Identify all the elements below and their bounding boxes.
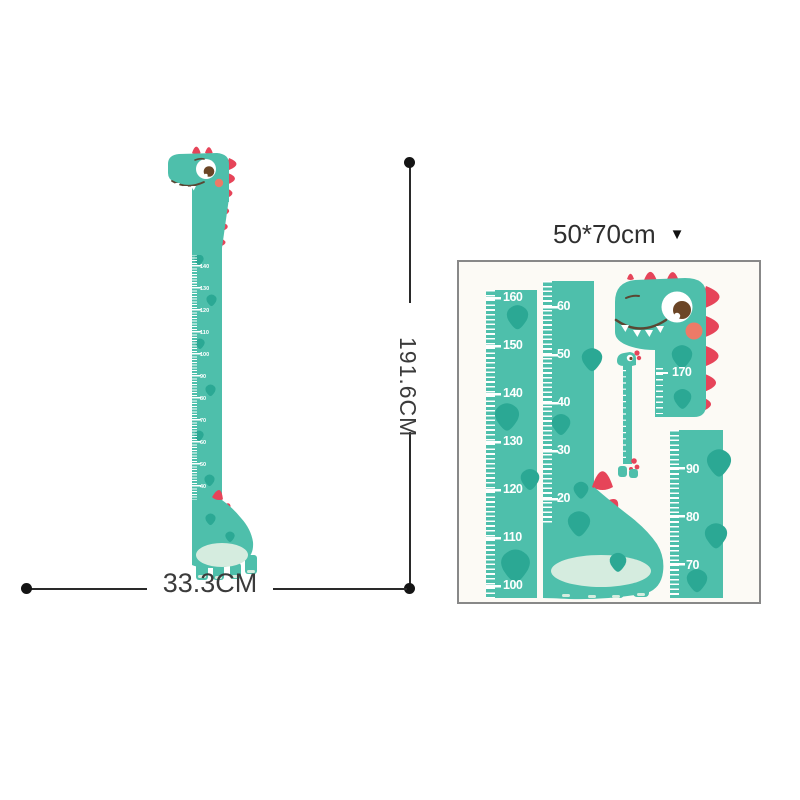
ruler-number: 70 (200, 418, 206, 424)
width-dimension-line-right (273, 588, 407, 590)
dino-body-art (185, 455, 270, 585)
dino-body-piece-art (543, 471, 663, 599)
mini-dino-piece-art (617, 350, 641, 478)
height-dimension-line-upper (409, 165, 411, 303)
ruler-number: 140 (200, 264, 209, 270)
sticker-sheet-art (459, 262, 755, 598)
ruler-number: 170 (672, 366, 691, 379)
ruler-number: 90 (200, 374, 206, 380)
height-dimension-line-lower (409, 432, 411, 584)
size-selector-label: 50*70cm (553, 219, 656, 250)
ruler-tick-large (656, 372, 668, 374)
ruler-number: 80 (200, 396, 206, 402)
height-dimension-dot-top (404, 157, 415, 168)
width-dimension-line-left (31, 588, 147, 590)
ruler-number: 110 (200, 330, 209, 336)
sticker-sheet-thumbnail: 160150140130120110100 605040302010 (457, 260, 761, 604)
dino-head-art (160, 140, 250, 255)
width-dimension-dot-left (21, 583, 32, 594)
ruler-number: 100 (200, 352, 209, 358)
page: 1701601501401301201101009080706050403020 (0, 0, 800, 800)
width-dimension-label: 33.3CM (146, 568, 274, 599)
chevron-down-icon: ▼ (670, 227, 685, 242)
ruler-number: 120 (200, 308, 209, 314)
size-selector[interactable]: 50*70cm ▼ (553, 219, 684, 250)
ruler-number: 60 (200, 440, 206, 446)
ruler-number: 130 (200, 286, 209, 292)
height-dimension-label: 191.6CM (394, 337, 421, 437)
